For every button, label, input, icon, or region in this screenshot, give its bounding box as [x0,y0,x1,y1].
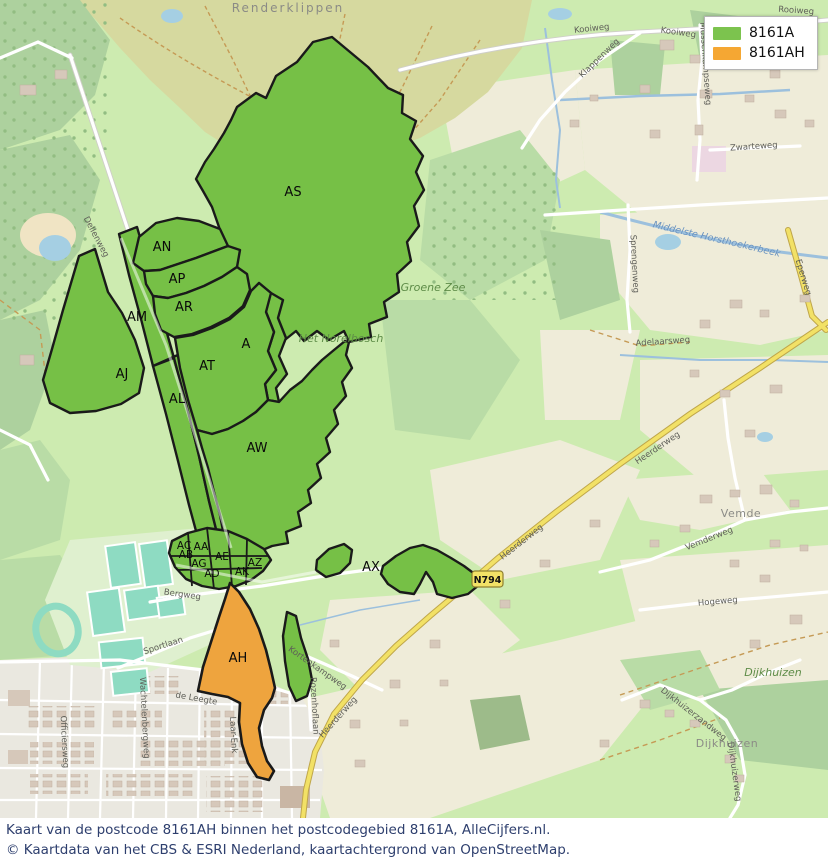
region-label-aa: AA [194,541,209,553]
legend-label-8161ah: 8161AH [749,45,805,61]
area-label-het-norelbosch: Het Norelbosch [299,332,384,345]
area-label-groene-zee: Groene Zee [401,281,466,294]
legend-label-8161a: 8161A [749,25,794,41]
road-label-laar-enk: Laar-Enk [227,716,239,753]
region-label-ae: AE [215,551,229,563]
postcode-map-screenshot: AS AN AP AR AM AJ A AT AL AW AC AA AB AE… [0,0,828,861]
region-label-am: AM [127,310,147,325]
region-label-ar: AR [175,300,193,315]
place-label-vemde: Vemde [721,507,761,520]
map-image: AS AN AP AR AM AJ A AT AL AW AC AA AB AE… [0,0,828,818]
map-canvas: AS AN AP AR AM AJ A AT AL AW AC AA AB AE… [0,0,828,818]
region-label-a: A [242,337,251,352]
region-label-an: AN [153,240,172,255]
legend-row-8161ah: 8161AH [713,43,809,63]
svg-text:N794: N794 [474,575,502,586]
legend-row-8161a: 8161A [713,23,809,43]
region-label-ah: AH [229,651,248,666]
caption-line-1: Kaart van de postcode 8161AH binnen het … [6,820,822,840]
region-label-aw: AW [246,441,267,456]
caption-line-2: © Kaartdata van het CBS & ESRI Nederland… [6,840,822,860]
region-label-ax: AX [362,560,380,575]
place-label-renderklippen: Renderklippen [232,1,345,15]
region-label-as: AS [284,185,301,200]
region-label-aj: AJ [116,367,129,382]
region-label-al: AL [169,392,186,407]
region-label-ap: AP [169,272,186,287]
legend-swatch-8161a [713,27,741,40]
area-label-dijkhuizen: Dijkhuizen [744,666,801,679]
region-label-at: AT [199,359,215,374]
legend-swatch-8161ah [713,47,741,60]
legend: 8161A 8161AH [704,16,818,70]
region-label-az: AZ [248,557,262,569]
road-shield-n794: N794 [472,571,503,587]
region-label-ad: AD [204,568,219,580]
caption: Kaart van de postcode 8161AH binnen het … [0,818,828,861]
